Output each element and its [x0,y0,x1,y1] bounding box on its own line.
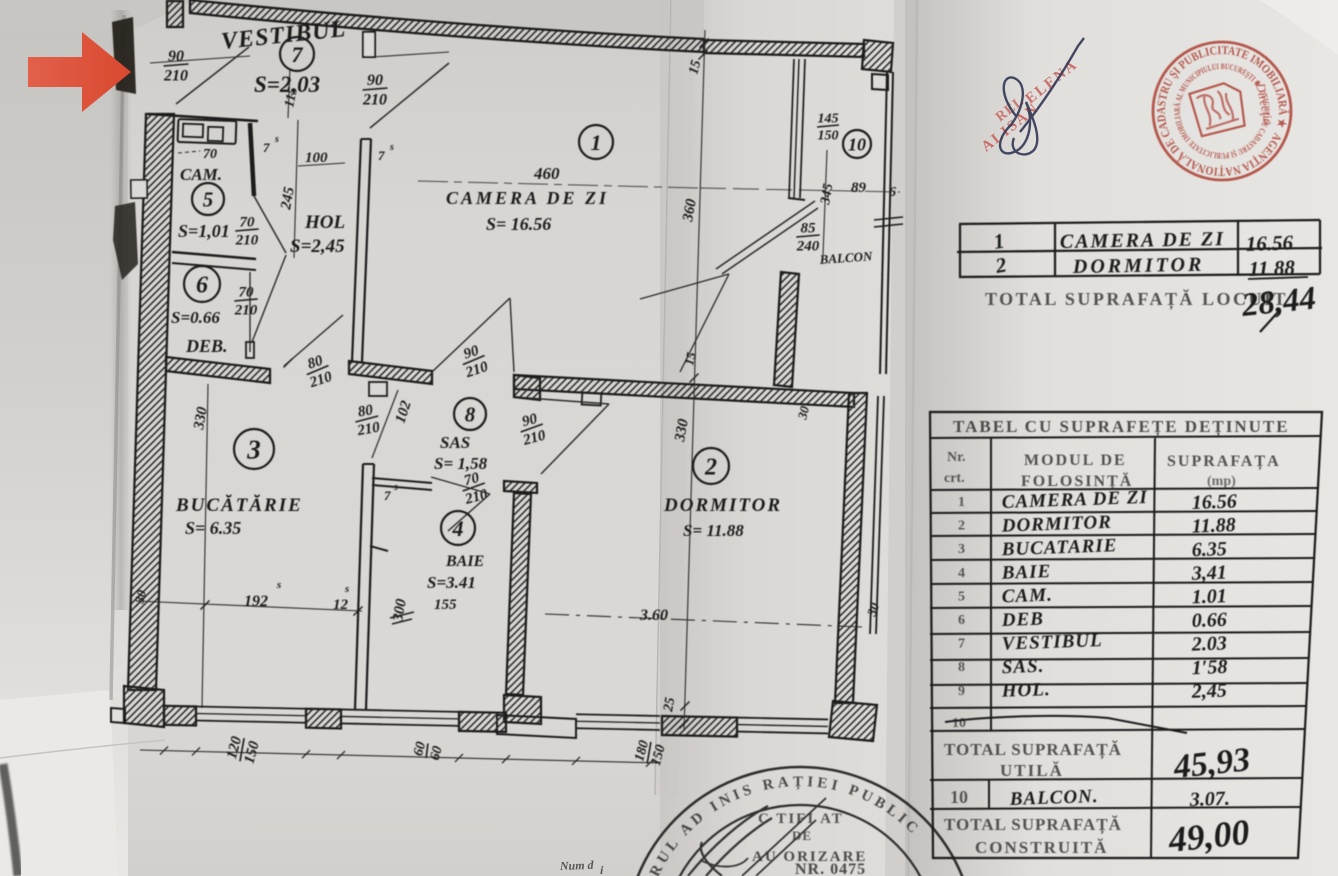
svg-text:DEB: DEB [1000,609,1044,631]
svg-text:4: 4 [452,516,464,541]
svg-text:16.56: 16.56 [1191,490,1237,514]
svg-text:210: 210 [163,67,188,84]
svg-text:BUCATARIE: BUCATARIE [1000,535,1117,560]
svg-text:155: 155 [434,597,457,613]
svg-text:CAM.: CAM. [1001,585,1053,608]
svg-text:CAMERA DE ZI: CAMERA DE ZI [446,188,609,208]
svg-text:89: 89 [851,180,867,196]
svg-text:s: s [393,482,398,493]
svg-text:7: 7 [958,637,965,652]
svg-text:DORMITOR: DORMITOR [663,495,782,516]
svg-text:NR. 0475: NR. 0475 [795,861,866,876]
svg-text:crt.: crt. [944,471,965,486]
svg-text:3: 3 [958,542,965,557]
svg-text:25: 25 [661,696,678,713]
svg-text:1: 1 [591,130,602,155]
svg-text:s: s [274,134,279,145]
svg-text:70: 70 [203,147,217,162]
svg-text:8: 8 [465,403,476,427]
svg-text:Num d: Num d [559,858,595,873]
svg-text:BAIE: BAIE [1000,561,1051,584]
svg-text:90: 90 [168,48,184,65]
svg-text:CAMERA DE ZI: CAMERA DE ZI [1060,228,1226,253]
svg-text:(mp): (mp) [1207,474,1236,489]
svg-text:DEB.: DEB. [185,336,228,356]
svg-text:SAS.: SAS. [1001,656,1044,678]
svg-text:70: 70 [239,284,255,300]
svg-text:6: 6 [196,273,208,299]
svg-text:2,45: 2,45 [1190,680,1227,703]
svg-text:4: 4 [958,566,965,581]
svg-text:DORMITOR: DORMITOR [1072,254,1205,278]
svg-text:7: 7 [292,42,304,67]
svg-text:1: 1 [958,495,965,510]
svg-text:0.66: 0.66 [1191,609,1227,632]
svg-text:3.60: 3.60 [639,607,668,624]
svg-text:145: 145 [818,111,839,126]
svg-text:6.35: 6.35 [1191,538,1227,561]
svg-text:s: s [344,583,349,595]
svg-text:70: 70 [240,214,256,230]
svg-text:16.56: 16.56 [1245,230,1294,256]
svg-text:DORMITOR: DORMITOR [1000,512,1112,537]
svg-text:S=2,45: S=2,45 [290,236,345,257]
svg-text:6: 6 [958,613,965,628]
svg-text:100: 100 [305,150,328,166]
svg-text:S=0.66: S=0.66 [171,308,220,327]
svg-text:TOTAL SUPRAFAȚĂ: TOTAL SUPRAFAȚĂ [944,815,1122,835]
svg-text:460: 460 [533,164,560,183]
svg-text:MODUL DE: MODUL DE [1024,452,1127,469]
svg-text:6: 6 [889,185,896,200]
svg-text:10: 10 [848,134,866,154]
svg-text:240: 240 [796,239,820,255]
svg-text:2.03: 2.03 [1190,632,1227,655]
svg-text:11.88: 11.88 [1191,514,1236,538]
svg-text:9: 9 [958,684,965,699]
svg-text:7: 7 [263,140,270,155]
svg-text:1.01: 1.01 [1191,585,1227,608]
svg-text:S=1,01: S=1,01 [178,221,230,241]
svg-text:210: 210 [362,91,387,108]
svg-text:TOTAL SUPRAFAȚĂ: TOTAL SUPRAFAȚĂ [944,740,1122,760]
svg-text:90: 90 [367,72,383,89]
svg-text:S= 1,58: S= 1,58 [434,454,488,473]
svg-text:85: 85 [801,220,817,236]
svg-text:210: 210 [234,303,258,319]
svg-text:3.07.: 3.07. [1188,788,1230,811]
svg-text:7: 7 [384,488,391,503]
svg-text:BUCĂTĂRIE: BUCĂTĂRIE [175,494,303,516]
svg-text:BALCON.: BALCON. [1008,786,1099,810]
svg-text:BAIE: BAIE [445,553,484,570]
svg-text:S= 16.56: S= 16.56 [486,214,551,234]
svg-text:2: 2 [704,455,717,481]
svg-text:7: 7 [378,148,385,163]
svg-text:5: 5 [203,188,214,212]
svg-text:Nr.: Nr. [947,450,966,465]
svg-text:S=3.41: S=3.41 [427,573,476,592]
svg-text:10: 10 [950,787,968,807]
svg-text:3: 3 [246,435,261,465]
svg-text:192: 192 [244,593,268,610]
svg-text:2: 2 [958,519,965,534]
svg-text:TABEL CU SUPRAFEȚE DEȚINUTE: TABEL CU SUPRAFEȚE DEȚINUTE [953,417,1290,437]
svg-text:150: 150 [818,129,839,144]
svg-text:s: s [389,142,394,153]
svg-text:S= 11.88: S= 11.88 [683,521,744,540]
svg-text:CONSTRUITĂ: CONSTRUITĂ [975,838,1108,857]
svg-text:210: 210 [235,233,259,249]
svg-text:49,00: 49,00 [1166,812,1252,860]
svg-text:CAM.: CAM. [180,165,222,184]
svg-text:SUPRAFAȚA: SUPRAFAȚA [1167,453,1281,471]
svg-text:10: 10 [952,716,966,731]
svg-text:1′58: 1′58 [1191,656,1227,679]
svg-text:8: 8 [958,660,965,675]
svg-text:VESTIBUL: VESTIBUL [1001,630,1103,655]
svg-text:SAS: SAS [440,433,470,452]
svg-text:UTILĂ: UTILĂ [1000,761,1064,780]
svg-text:5: 5 [958,589,965,604]
svg-text:3,41: 3,41 [1190,562,1227,585]
svg-text:12: 12 [333,597,349,613]
svg-text:s: s [276,579,281,591]
svg-text:HOL: HOL [304,212,345,233]
svg-text:S= 6.35: S= 6.35 [185,518,241,538]
svg-text:HOL.: HOL. [1000,679,1051,702]
